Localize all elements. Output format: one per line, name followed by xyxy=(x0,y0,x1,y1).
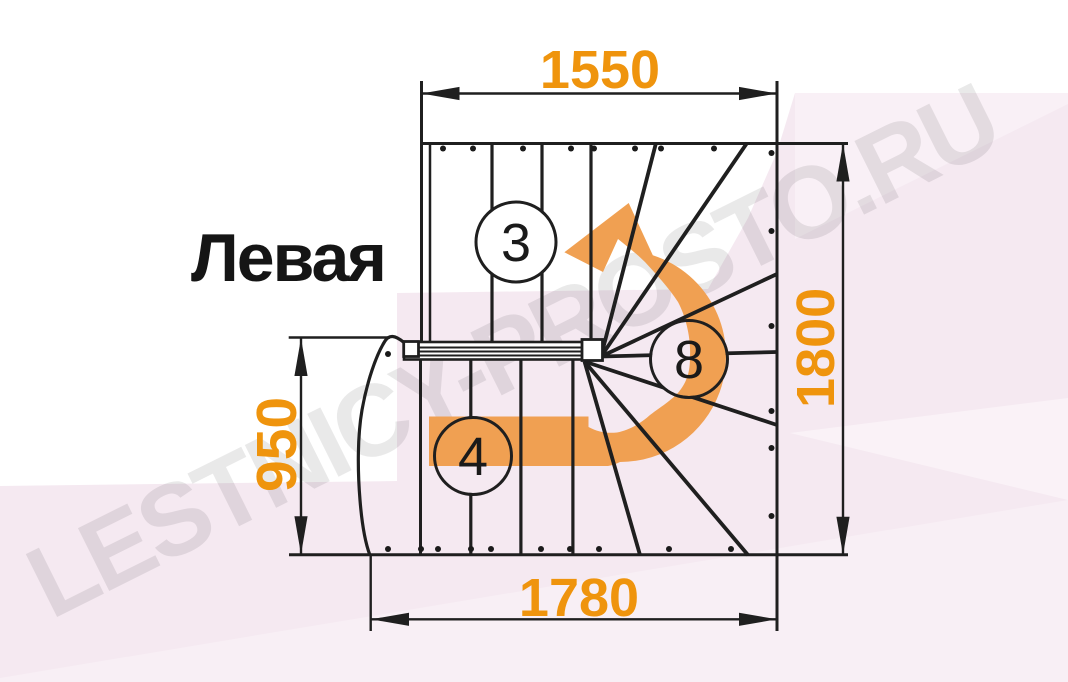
svg-text:950: 950 xyxy=(245,397,309,492)
svg-text:1550: 1550 xyxy=(540,40,660,100)
svg-text:1780: 1780 xyxy=(519,568,639,628)
svg-text:8: 8 xyxy=(674,330,704,390)
svg-text:Левая: Левая xyxy=(191,220,385,296)
svg-text:4: 4 xyxy=(458,427,488,487)
svg-text:3: 3 xyxy=(501,213,531,273)
svg-text:1800: 1800 xyxy=(786,288,846,408)
